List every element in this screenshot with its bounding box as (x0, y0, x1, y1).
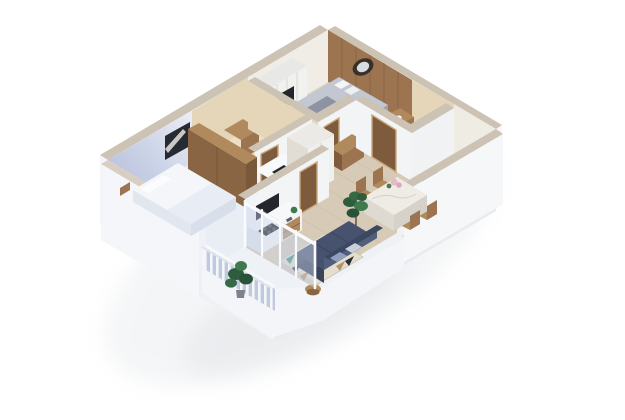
plant-leaf-5 (357, 193, 367, 201)
balcony-leaf-4 (225, 278, 237, 287)
plant-leaf-4 (347, 208, 360, 217)
console-plant (291, 207, 298, 214)
balcony-leaf-3 (235, 261, 247, 271)
flowers-green (387, 184, 392, 189)
floor-plan-render (0, 0, 625, 420)
balcony-plant-pot (236, 290, 245, 298)
balcony-leaf-2 (239, 274, 253, 285)
flowers-pink-2 (396, 182, 402, 188)
side-stool-base (307, 289, 320, 296)
corridor-door (300, 162, 317, 214)
apartment-isometric-svg (0, 0, 625, 420)
